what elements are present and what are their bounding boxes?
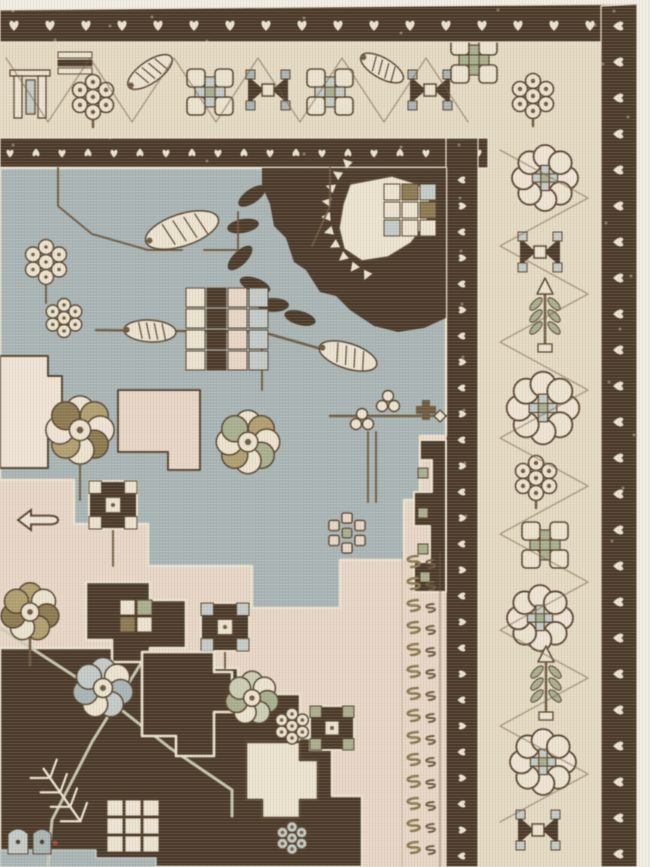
- motif-checkerSquare: [89, 481, 137, 529]
- rug-photo: [0, 0, 650, 867]
- motif-checker: [384, 184, 436, 236]
- inner-guard-right: [446, 138, 478, 867]
- inner-guard-top: [0, 137, 488, 169]
- motif-petalFlower: [216, 410, 279, 473]
- motif-petalFlower: [46, 396, 114, 464]
- motif-dot: [53, 841, 58, 846]
- motif-cluster: [277, 822, 307, 855]
- field: [0, 159, 446, 867]
- outer-guard-top: [0, 4, 637, 43]
- rug-svg: [0, 0, 650, 867]
- motif-checkerSquare: [201, 603, 249, 651]
- outer-guard-right: [601, 4, 637, 867]
- motif-roundRosette: [507, 372, 580, 445]
- motif-arch: [8, 829, 28, 854]
- motif-checker: [107, 800, 159, 852]
- motif-arch: [33, 829, 51, 854]
- motif-cluster: [276, 708, 309, 744]
- motif-roundRosette: [512, 145, 578, 211]
- motif-checkerSquare: [310, 706, 354, 750]
